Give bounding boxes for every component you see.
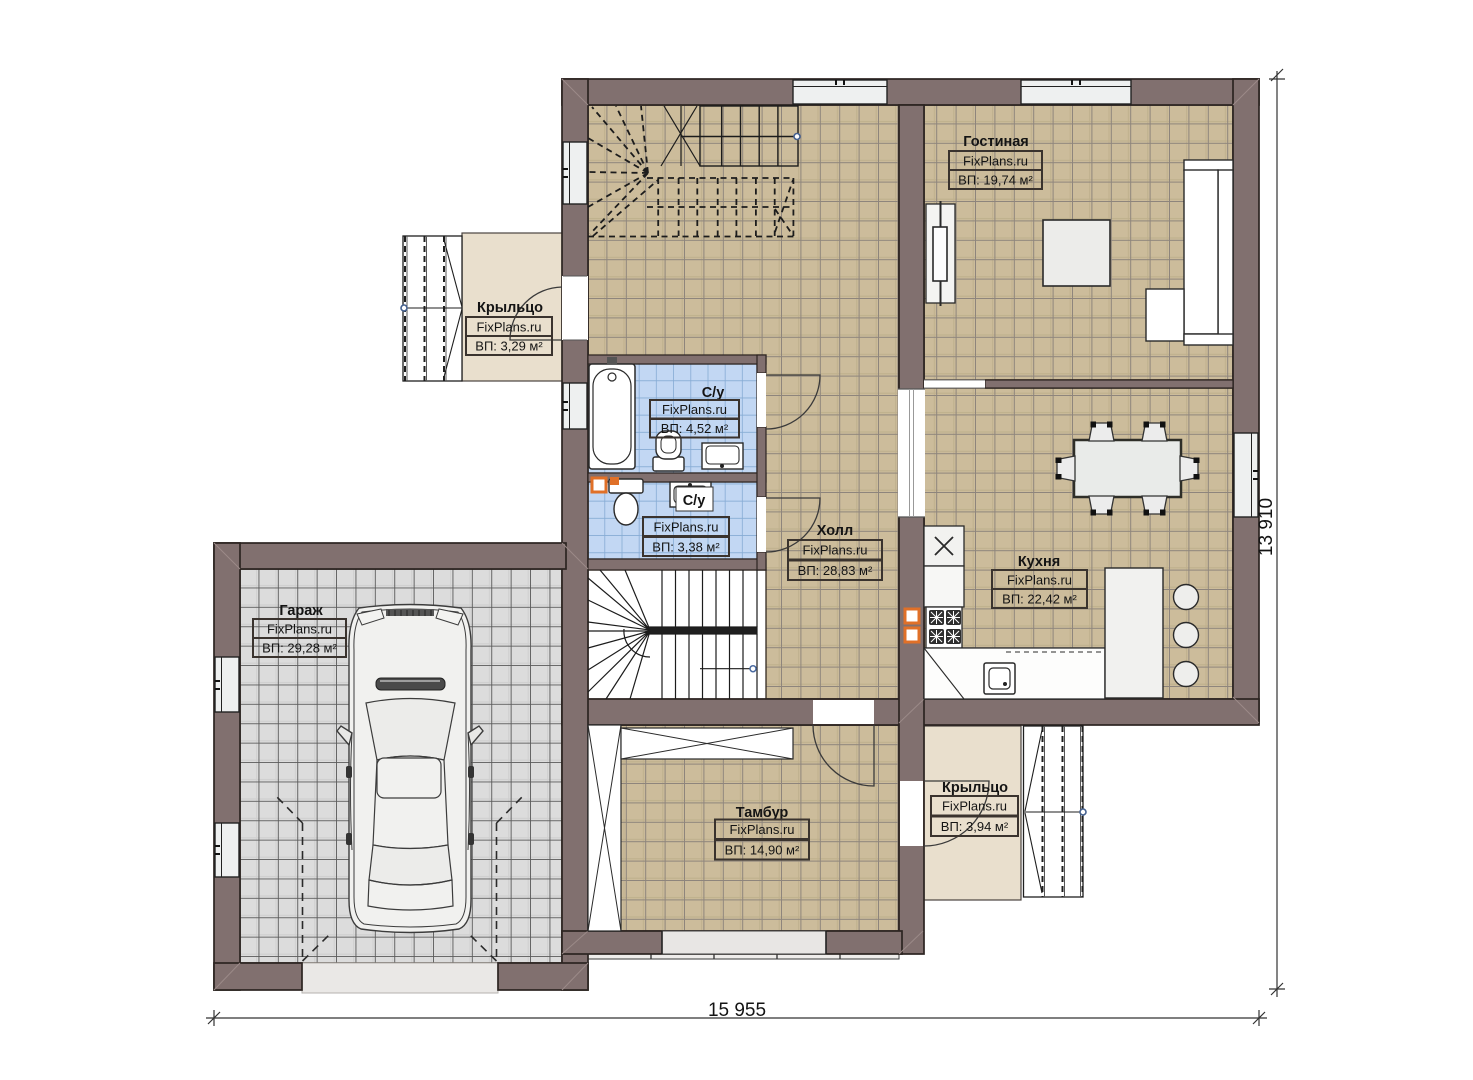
svg-text:FixPlans.ru: FixPlans.ru: [942, 799, 1007, 814]
svg-text:ВП: 19,74 м²: ВП: 19,74 м²: [958, 173, 1033, 188]
svg-text:13 910: 13 910: [1256, 498, 1277, 556]
svg-text:FixPlans.ru: FixPlans.ru: [729, 822, 794, 837]
svg-text:С/у: С/у: [683, 493, 706, 509]
svg-text:FixPlans.ru: FixPlans.ru: [802, 543, 867, 558]
svg-text:FixPlans.ru: FixPlans.ru: [662, 402, 727, 417]
svg-text:FixPlans.ru: FixPlans.ru: [267, 622, 332, 637]
svg-text:15 955: 15 955: [708, 1000, 766, 1021]
svg-text:Холл: Холл: [817, 523, 853, 539]
svg-text:Крыльцо: Крыльцо: [477, 300, 543, 316]
svg-text:ВП: 14,90 м²: ВП: 14,90 м²: [725, 843, 800, 858]
svg-text:FixPlans.ru: FixPlans.ru: [476, 320, 541, 335]
svg-text:ВП: 28,83 м²: ВП: 28,83 м²: [798, 563, 873, 578]
svg-text:ВП: 3,38 м²: ВП: 3,38 м²: [652, 540, 720, 555]
svg-text:ВП: 3,29 м²: ВП: 3,29 м²: [475, 339, 543, 354]
svg-text:Крыльцо: Крыльцо: [942, 780, 1008, 796]
svg-text:Гостиная: Гостиная: [963, 134, 1029, 150]
svg-text:FixPlans.ru: FixPlans.ru: [1007, 573, 1072, 588]
svg-text:FixPlans.ru: FixPlans.ru: [653, 520, 718, 535]
svg-text:С/у: С/у: [702, 385, 725, 401]
svg-text:ВП: 22,42 м²: ВП: 22,42 м²: [1002, 592, 1077, 607]
svg-text:ВП: 4,52 м²: ВП: 4,52 м²: [661, 421, 729, 436]
svg-text:Гараж: Гараж: [279, 603, 323, 619]
svg-text:ВП: 29,28 м²: ВП: 29,28 м²: [262, 641, 337, 656]
svg-text:FixPlans.ru: FixPlans.ru: [963, 154, 1028, 169]
svg-text:Кухня: Кухня: [1018, 554, 1060, 570]
svg-text:ВП: 3,94 м²: ВП: 3,94 м²: [941, 819, 1009, 834]
